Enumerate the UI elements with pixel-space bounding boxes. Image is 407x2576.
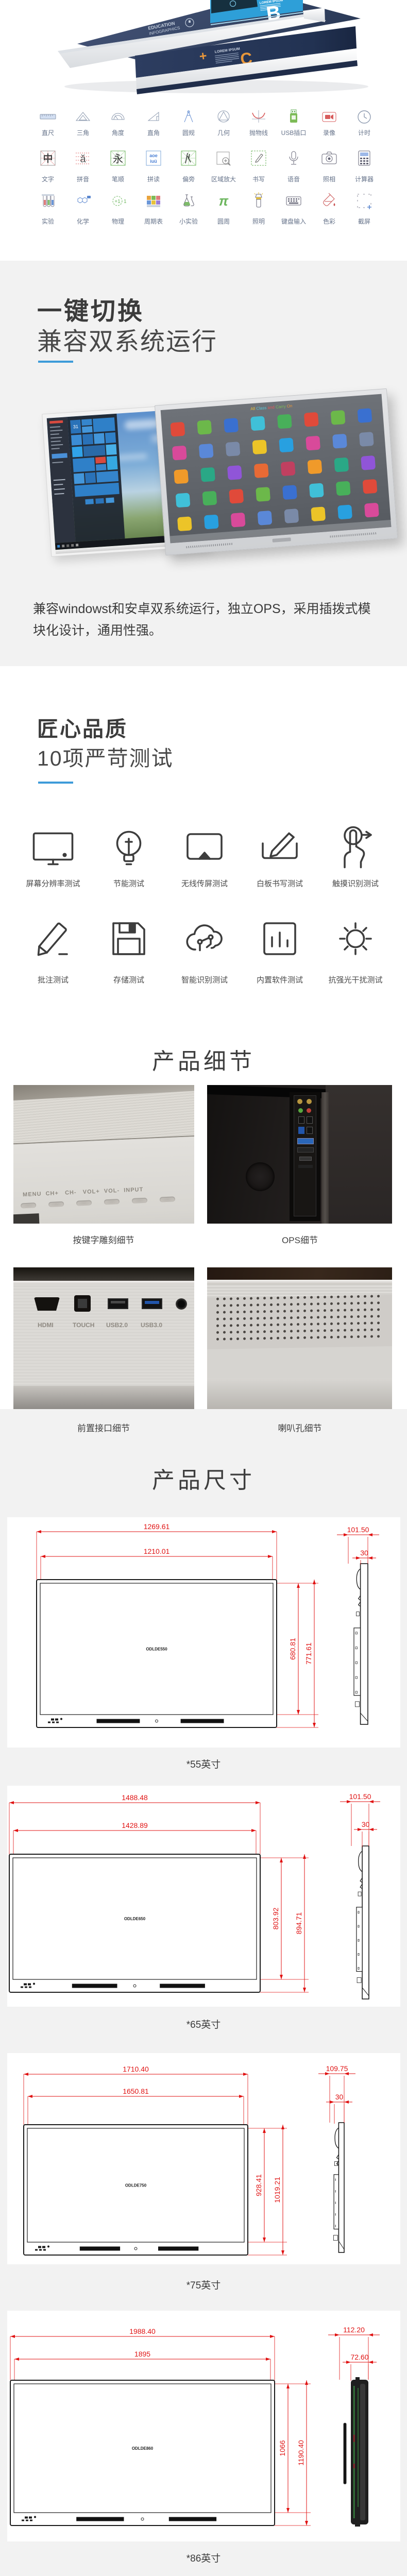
svg-text:1190.40: 1190.40 — [297, 2440, 305, 2466]
svg-text:1988.40: 1988.40 — [129, 2327, 156, 2335]
svg-text:1: 1 — [124, 199, 127, 205]
svg-text:1488.48: 1488.48 — [122, 1793, 148, 1802]
svg-text:1066: 1066 — [278, 2440, 286, 2456]
svg-text:771.61: 771.61 — [304, 1642, 313, 1665]
svg-text:30: 30 — [335, 2093, 344, 2101]
svg-text:1210.01: 1210.01 — [144, 1547, 170, 1555]
svg-text:π: π — [219, 193, 229, 209]
svg-text:803.92: 803.92 — [272, 1907, 280, 1929]
svg-text:ODLDE650: ODLDE650 — [124, 1917, 146, 1921]
svg-text:中: 中 — [43, 152, 53, 164]
svg-text:1710.40: 1710.40 — [123, 2065, 149, 2073]
svg-text:aoe: aoe — [149, 153, 158, 158]
svg-text:680.81: 680.81 — [289, 1638, 297, 1660]
svg-text:1428.89: 1428.89 — [122, 1821, 148, 1829]
svg-text:1019.21: 1019.21 — [273, 2177, 281, 2203]
svg-text:ă: ă — [80, 154, 86, 165]
svg-text:101.50: 101.50 — [349, 1792, 371, 1801]
svg-text:1269.61: 1269.61 — [144, 1522, 170, 1531]
svg-text:101.50: 101.50 — [347, 1526, 369, 1534]
svg-text:ODLDE860: ODLDE860 — [132, 2446, 154, 2451]
svg-text:30: 30 — [360, 1549, 368, 1557]
svg-text:ODLDE550: ODLDE550 — [146, 1647, 167, 1652]
svg-text:30: 30 — [362, 1820, 370, 1828]
svg-text:B: B — [265, 2, 282, 25]
svg-text:894.71: 894.71 — [295, 1912, 303, 1934]
svg-text:72.60: 72.60 — [350, 2353, 368, 2361]
svg-text:109.75: 109.75 — [326, 2064, 348, 2073]
svg-text:1650.81: 1650.81 — [123, 2087, 149, 2095]
svg-text:永: 永 — [113, 153, 123, 165]
svg-text:+1: +1 — [114, 199, 121, 205]
svg-text:928.41: 928.41 — [255, 2174, 263, 2196]
svg-text:ODLDE750: ODLDE750 — [125, 2183, 147, 2188]
svg-text:iuü: iuü — [150, 159, 157, 164]
svg-text:1895: 1895 — [134, 2350, 150, 2358]
svg-text:112.20: 112.20 — [343, 2326, 365, 2334]
